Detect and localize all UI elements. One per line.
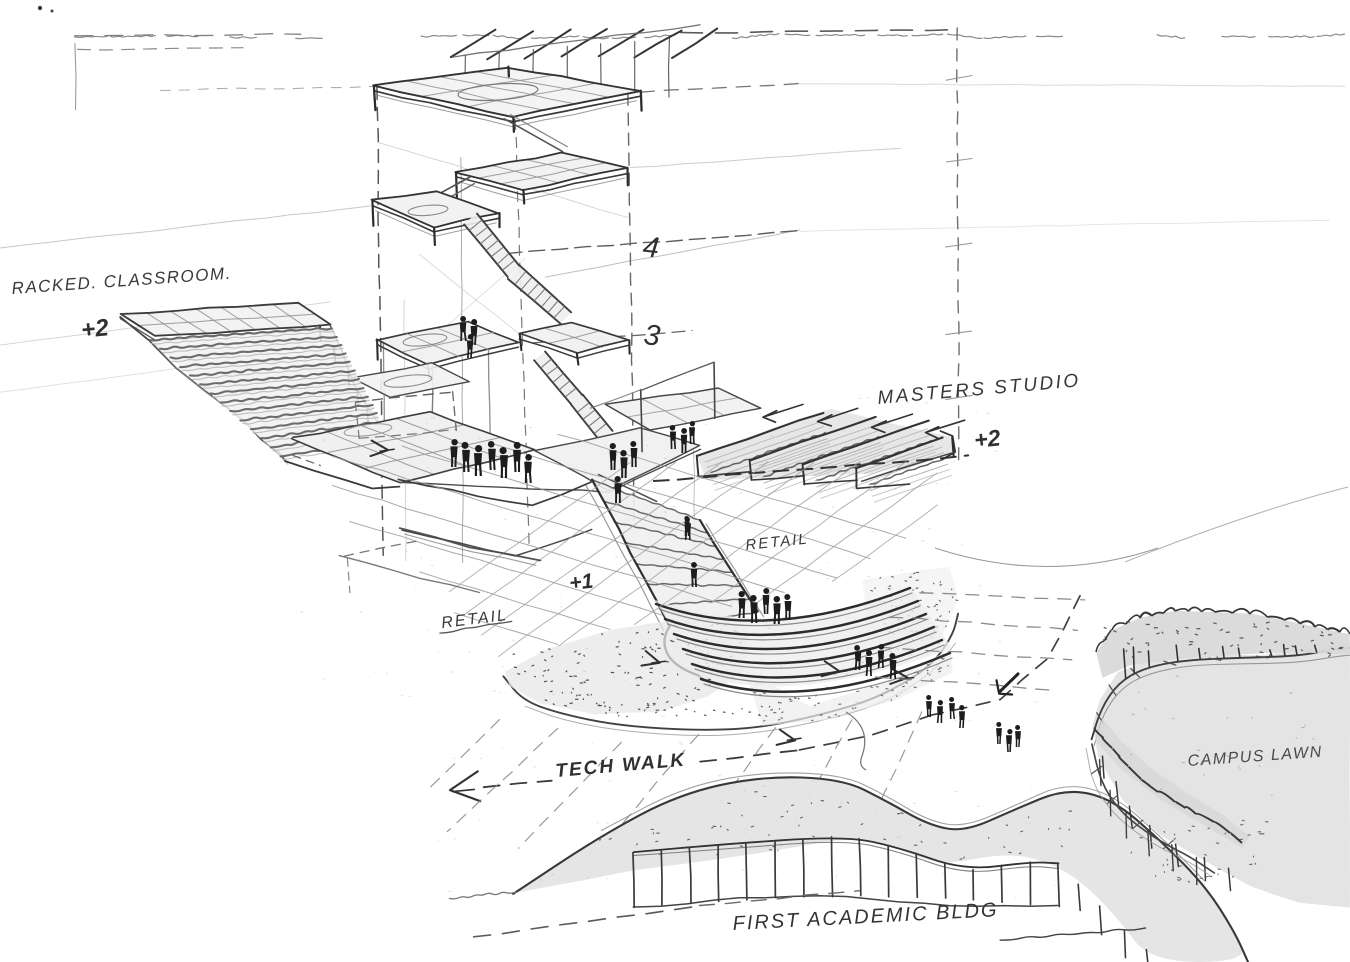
svg-text:3: 3 — [642, 319, 661, 353]
svg-text:+1: +1 — [568, 570, 594, 595]
svg-text:+2: +2 — [973, 424, 1002, 453]
svg-text:4: 4 — [641, 231, 660, 265]
svg-text:+2: +2 — [80, 314, 111, 344]
